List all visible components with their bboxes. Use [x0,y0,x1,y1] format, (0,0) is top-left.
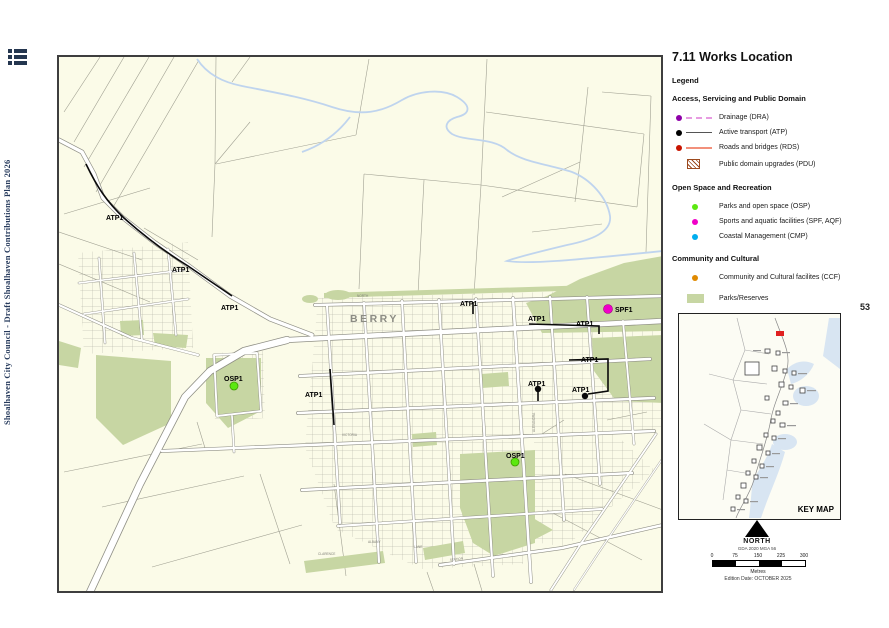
scale-bar: 0 75 150 225 300 Metres Edition Date: OC… [710,553,806,582]
atp-dot-icon [676,130,682,136]
atp1-label: ATP1 [528,381,545,388]
legend-heading: Legend [672,76,872,85]
north-label: NORTH [727,538,787,545]
menu-bar-row [8,55,27,59]
list-menu-icon[interactable] [8,49,27,67]
scale-tick: 0 [711,553,714,559]
legend-item-sports-aquatic: Sports and aquatic facilities (SPF, AQF) [672,214,872,229]
legend-item-drainage: Drainage (DRA) [672,110,872,125]
atp1-label: ATP1 [576,321,593,328]
parks-reserves-swatch [687,294,704,303]
legend-item-label: Public domain upgrades (PDU) [719,161,816,168]
atp1-label: ATP1 [221,305,238,312]
legend-item-label: Community and Cultural facilites (CCF) [719,274,840,281]
atp1-label: ATP1 [528,316,545,323]
spf-dot-icon [692,219,698,225]
key-map-label: KEY MAP [798,505,835,514]
town-label: BERRY [350,313,399,325]
page-number: 53 [860,302,870,312]
street-label: CLARENCE [318,552,335,556]
works-location-map: BERRY ATP1 ATP1 ATP1 ATP1 ATP1 ATP1 ATP1… [57,55,663,593]
menu-bar-row [8,49,27,53]
key-map-canvas: KEY MAP [679,314,840,519]
legend-item-label: Parks and open space (OSP) [719,203,810,210]
osp-marker [230,382,238,390]
street-label: ALEXANDRA [532,412,536,432]
page-title: 7.11 Works Location [672,50,872,64]
legend-item-public-domain: Public domain upgrades (PDU) [672,155,872,173]
atp1-label: ATP1 [460,301,477,308]
north-arrow-icon [745,520,769,537]
scale-tick-labels: 0 75 150 225 300 [710,553,806,559]
scale-tick: 75 [732,553,738,559]
rds-dot-icon [676,145,682,151]
atp1-label: ATP1 [106,215,123,222]
scale-tick: 150 [754,553,762,559]
pdu-hatch-icon [687,159,700,169]
legend-item-label: Parks/Reserves [719,295,768,302]
spf1-label: SPF1 [615,307,633,314]
ccf-dot-icon [692,275,698,281]
drainage-dot-icon [676,115,682,121]
atp1-label: ATP1 [581,357,598,364]
rds-line-icon [686,147,712,149]
street-label: NORTH [357,294,369,298]
legend-item-label: Active transport (ATP) [719,129,787,136]
osp-dot-icon [692,204,698,210]
legend-item-label: Sports and aquatic facilities (SPF, AQF) [719,218,842,225]
legend-item-coastal: Coastal Management (CMP) [672,229,872,244]
street-label: ALBANY [368,540,381,544]
atp1-label: ATP1 [172,267,189,274]
north-arrow-block: NORTH GDA 2020 MGA 56 [727,520,787,551]
osp1-label: OSP1 [506,453,525,460]
map-canvas: BERRY ATP1 ATP1 ATP1 ATP1 ATP1 ATP1 ATP1… [59,57,661,591]
key-map: KEY MAP [678,313,841,520]
map-datum-label: GDA 2020 MGA 56 [727,546,787,551]
key-map-highlight-berry [776,331,784,336]
legend-item-community-cultural: Community and Cultural facilites (CCF) [672,270,872,285]
drainage-line-icon [686,117,712,119]
scale-bar-strip [712,560,806,567]
spf-marker [604,305,613,314]
atp1-label: ATP1 [305,392,322,399]
cmp-dot-icon [692,234,698,240]
legend-item-roads-bridges: Roads and bridges (RDS) [672,140,872,155]
scale-tick: 225 [777,553,785,559]
legend-item-parks-reserves: Parks/Reserves [672,291,872,306]
atp1-label: ATP1 [572,387,589,394]
legend-item-label: Coastal Management (CMP) [719,233,808,240]
osp1-label: OSP1 [224,376,243,383]
legend-item-label: Roads and bridges (RDS) [719,144,799,151]
legend-section-title: Open Space and Recreation [672,183,872,192]
street-label: VICTORIA [342,433,358,437]
legend-item-parks-open-space: Parks and open space (OSP) [672,199,872,214]
scale-tick: 300 [800,553,808,559]
edition-date-label: Edition Date: OCTOBER 2025 [710,576,806,582]
scale-unit-label: Metres [710,569,806,575]
legend-section-title: Community and Cultural [672,254,872,263]
legend-item-label: Drainage (DRA) [719,114,769,121]
menu-bar-row [8,61,27,65]
street-label: LANE [414,545,422,549]
document-spine-title: Shoalhaven City Council - Draft Shoalhav… [2,150,22,434]
legend-section-title: Access, Servicing and Public Domain [672,94,872,103]
legend-item-active-transport: Active transport (ATP) [672,125,872,140]
legend-panel: 7.11 Works Location Legend Access, Servi… [672,50,872,306]
atp-line-icon [686,132,712,133]
